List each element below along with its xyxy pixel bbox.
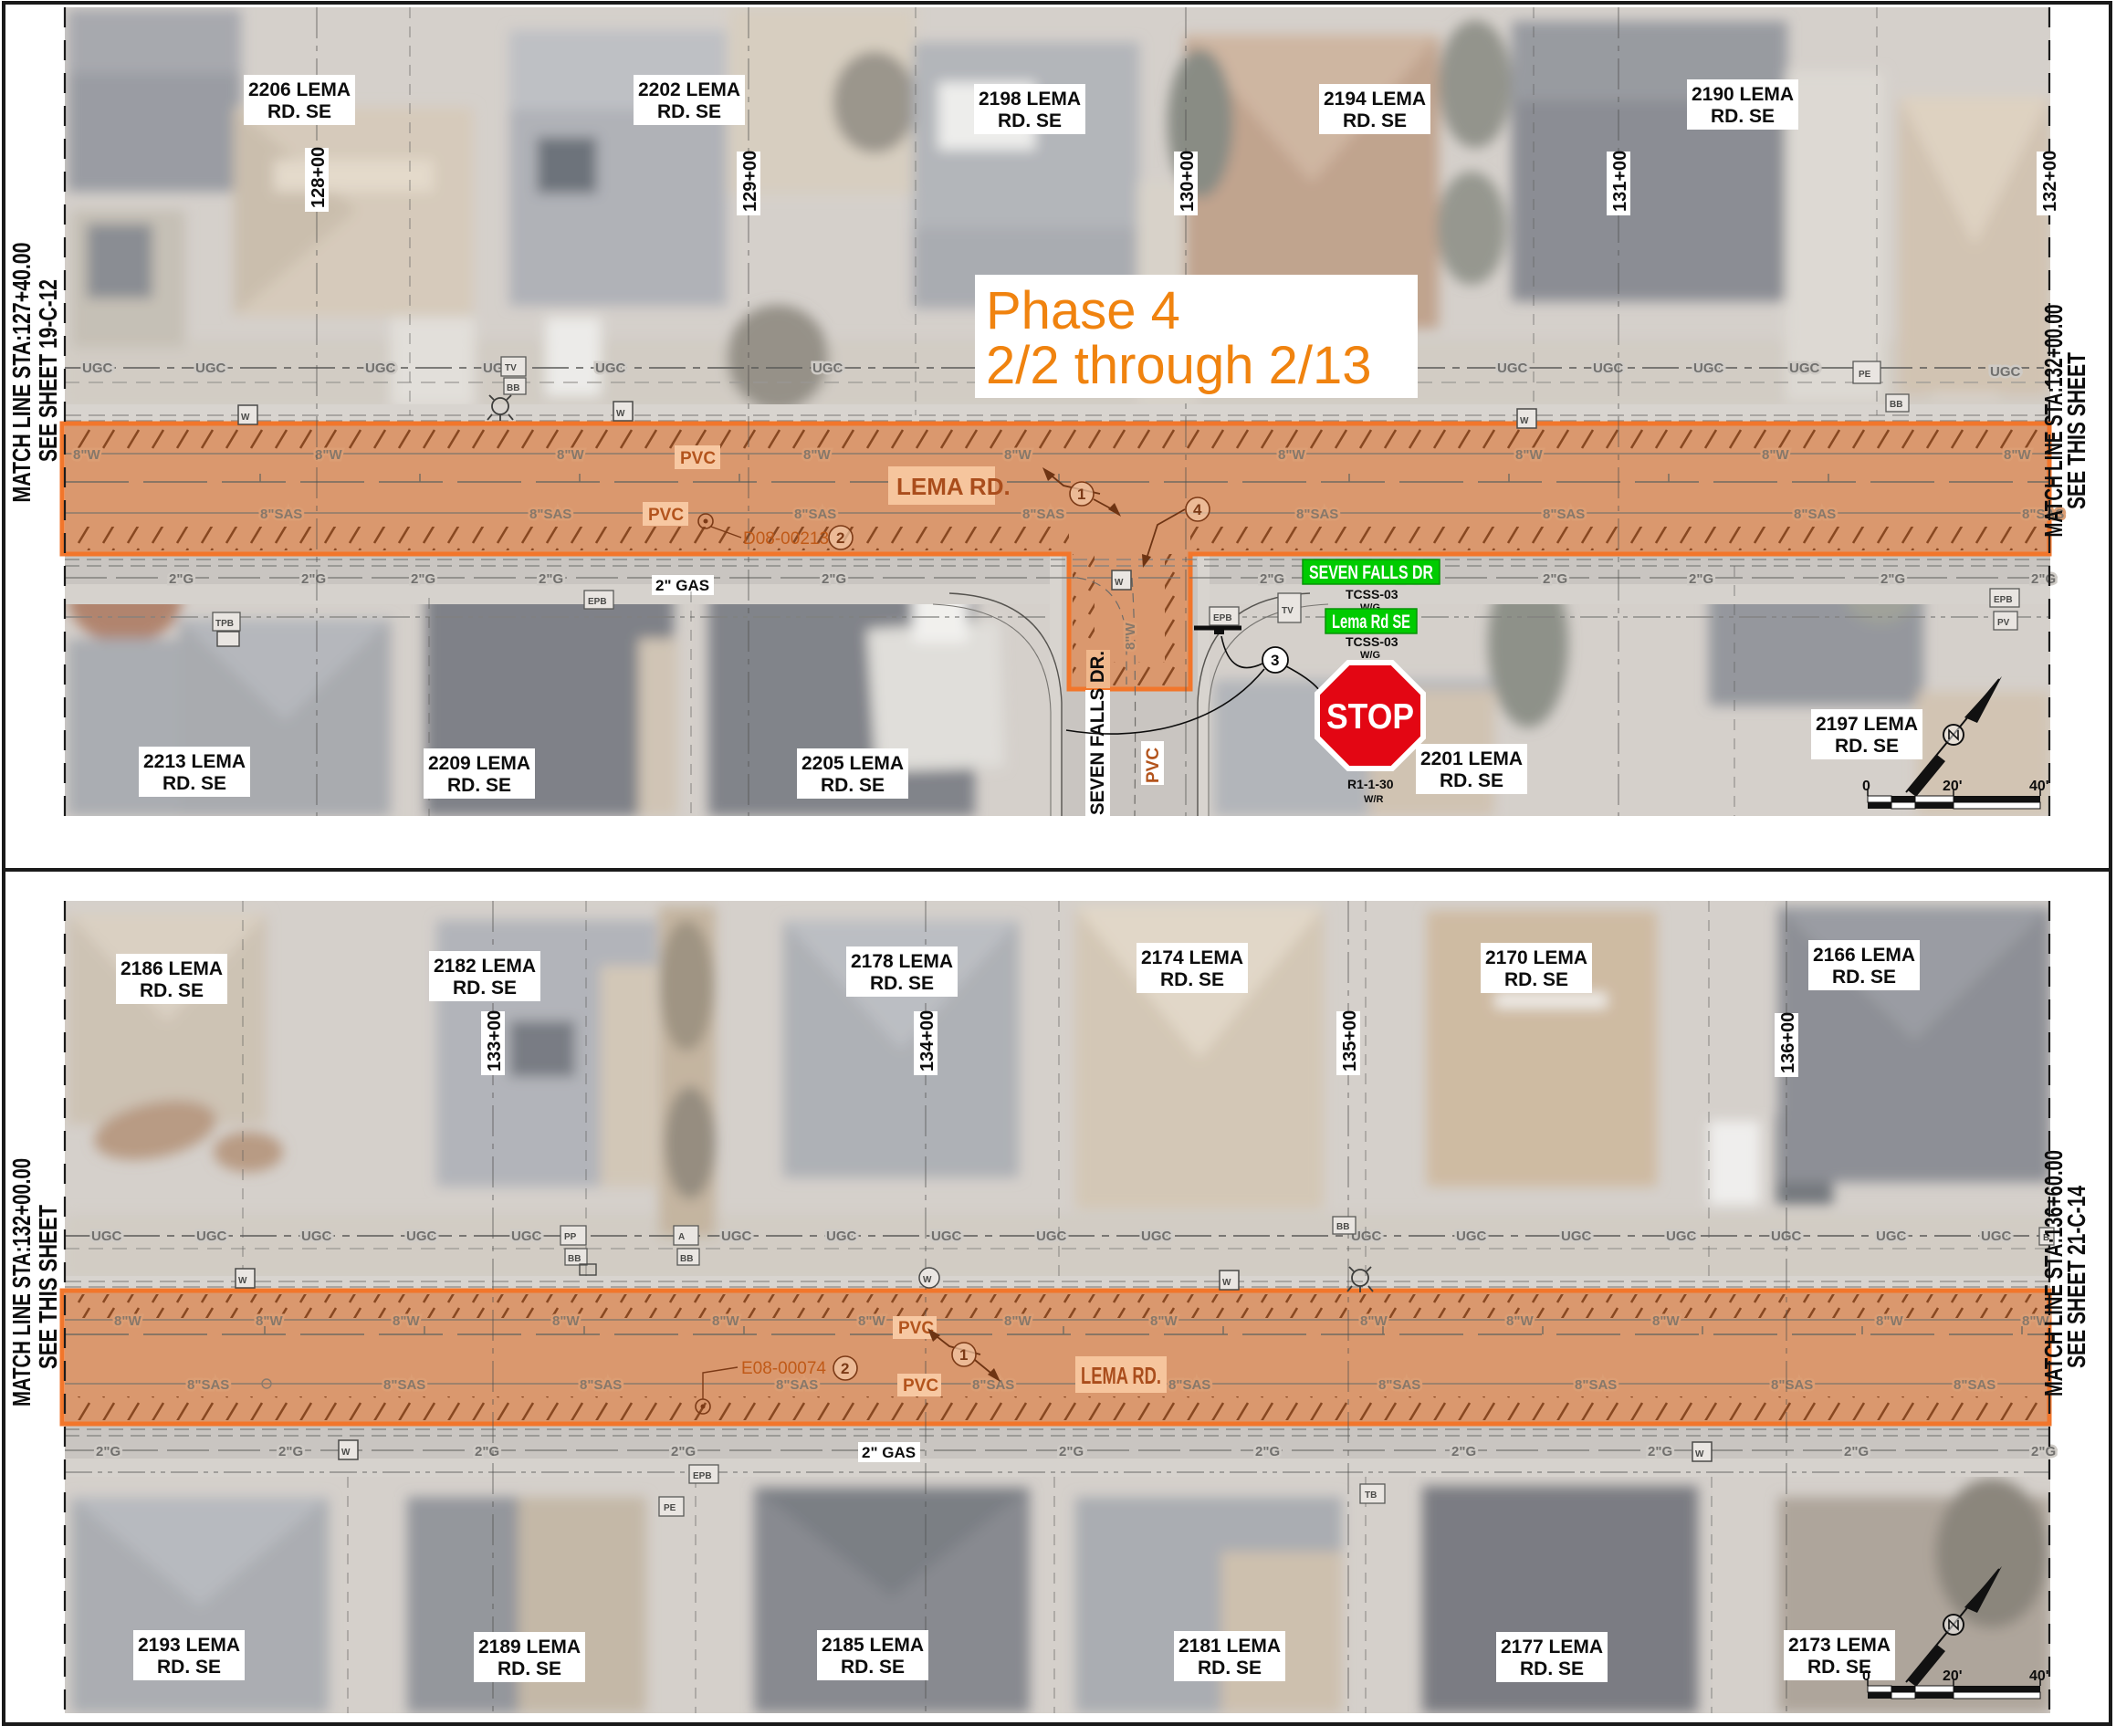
svg-text:8"SAS: 8"SAS — [1168, 1377, 1210, 1393]
svg-text:132+00: 132+00 — [2040, 151, 2060, 212]
svg-text:W: W — [616, 409, 625, 419]
svg-text:SEE THIS SHEET: SEE THIS SHEET — [34, 1205, 62, 1369]
svg-text:2" GAS: 2" GAS — [655, 577, 709, 594]
svg-text:PP: PP — [564, 1232, 577, 1242]
svg-text:MATCH LINE STA:132+00.00: MATCH LINE STA:132+00.00 — [7, 1158, 36, 1407]
svg-text:8"SAS: 8"SAS — [1794, 507, 1836, 522]
svg-text:2206 LEMA: 2206 LEMA — [248, 79, 351, 100]
svg-text:133+00: 133+00 — [485, 1010, 505, 1072]
svg-text:TV: TV — [505, 363, 517, 373]
svg-text:8"W: 8"W — [1876, 1313, 1903, 1329]
svg-text:40': 40' — [2029, 1668, 2049, 1684]
svg-text:BB: BB — [507, 383, 519, 393]
svg-text:TPB: TPB — [215, 619, 234, 629]
svg-text:8"W: 8"W — [73, 447, 100, 463]
svg-text:UGC: UGC — [1666, 1229, 1697, 1244]
svg-text:EPB: EPB — [588, 597, 607, 607]
svg-text:2193 LEMA: 2193 LEMA — [138, 1635, 240, 1656]
svg-text:TB: TB — [1365, 1490, 1377, 1501]
svg-text:Lema Rd SE: Lema Rd SE — [1332, 612, 1410, 633]
svg-text:SEE THIS SHEET: SEE THIS SHEET — [2062, 352, 2090, 509]
svg-text:RD. SE: RD. SE — [1504, 969, 1568, 990]
svg-text:8"W: 8"W — [803, 447, 831, 463]
svg-text:8"SAS: 8"SAS — [1954, 1377, 1996, 1393]
svg-text:0: 0 — [1862, 1668, 1870, 1684]
svg-text:8"SAS: 8"SAS — [1575, 1377, 1617, 1393]
svg-text:135+00: 135+00 — [1340, 1010, 1360, 1072]
svg-text:W: W — [238, 1276, 247, 1286]
svg-text:EPB: EPB — [1213, 613, 1232, 623]
svg-text:UGC: UGC — [1693, 361, 1724, 376]
svg-text:2173 LEMA: 2173 LEMA — [1788, 1635, 1891, 1656]
svg-text:UGC: UGC — [195, 361, 226, 376]
svg-text:2"G: 2"G — [2031, 1444, 2056, 1459]
svg-text:RD. SE: RD. SE — [998, 110, 1062, 131]
svg-text:PE: PE — [1859, 370, 1871, 380]
svg-text:TCSS-03: TCSS-03 — [1346, 587, 1398, 601]
svg-text:RD. SE: RD. SE — [453, 978, 517, 999]
svg-text:RD. SE: RD. SE — [267, 101, 331, 122]
svg-text:2"G: 2"G — [671, 1444, 696, 1459]
svg-text:2: 2 — [841, 1360, 849, 1377]
svg-text:131+00: 131+00 — [1610, 151, 1630, 212]
svg-text:2"G: 2"G — [2031, 571, 2056, 587]
svg-text:2181 LEMA: 2181 LEMA — [1178, 1636, 1281, 1657]
svg-text:UGC: UGC — [196, 1229, 227, 1244]
svg-text:8"W: 8"W — [557, 447, 584, 463]
svg-text:UGC: UGC — [511, 1229, 542, 1244]
svg-text:BB: BB — [568, 1254, 581, 1264]
svg-text:129+00: 129+00 — [740, 151, 760, 212]
svg-text:8"W: 8"W — [2004, 447, 2031, 463]
svg-text:BB: BB — [1336, 1222, 1349, 1232]
svg-text:PVC: PVC — [1144, 748, 1163, 783]
svg-text:2194 LEMA: 2194 LEMA — [1324, 89, 1426, 110]
svg-text:2"G: 2"G — [822, 571, 846, 587]
svg-text:W: W — [1520, 416, 1529, 426]
svg-text:128+00: 128+00 — [309, 147, 329, 208]
svg-text:RD. SE: RD. SE — [1520, 1658, 1584, 1679]
svg-text:SEE SHEET 21-C-14: SEE SHEET 21-C-14 — [2062, 1186, 2090, 1368]
svg-text:2: 2 — [836, 529, 844, 547]
svg-text:2185 LEMA: 2185 LEMA — [822, 1635, 924, 1656]
svg-text:RD. SE: RD. SE — [1440, 770, 1503, 791]
svg-text:SEE SHEET 19-C-12: SEE SHEET 19-C-12 — [34, 279, 62, 462]
svg-text:2"G: 2"G — [1648, 1444, 1672, 1459]
svg-text:8"SAS: 8"SAS — [580, 1377, 622, 1393]
svg-text:UGC: UGC — [931, 1229, 962, 1244]
svg-text:8"SAS: 8"SAS — [972, 1377, 1014, 1393]
svg-text:2/2 through 2/13: 2/2 through 2/13 — [986, 336, 1371, 395]
svg-text:8"W: 8"W — [315, 447, 342, 463]
svg-text:2174 LEMA: 2174 LEMA — [1141, 947, 1243, 968]
svg-text:D08-00213: D08-00213 — [743, 529, 829, 549]
svg-text:UGC: UGC — [1981, 1229, 2012, 1244]
svg-text:UGC: UGC — [1036, 1229, 1067, 1244]
svg-text:2190 LEMA: 2190 LEMA — [1692, 84, 1794, 105]
svg-text:UGC: UGC — [301, 1229, 332, 1244]
svg-text:RD. SE: RD. SE — [821, 775, 885, 796]
svg-text:W/R: W/R — [1364, 794, 1383, 805]
svg-text:W: W — [1695, 1449, 1704, 1459]
svg-text:RD. SE: RD. SE — [140, 980, 204, 1001]
svg-text:2"G: 2"G — [1880, 571, 1905, 587]
svg-text:STOP: STOP — [1326, 697, 1414, 737]
svg-text:2"G: 2"G — [301, 571, 326, 587]
svg-text:3: 3 — [1271, 652, 1279, 669]
svg-text:W/G: W/G — [1360, 650, 1380, 661]
svg-text:2170 LEMA: 2170 LEMA — [1485, 947, 1587, 968]
svg-text:130+00: 130+00 — [1178, 151, 1198, 212]
svg-text:RD. SE: RD. SE — [498, 1658, 561, 1679]
svg-text:BB: BB — [680, 1254, 693, 1264]
svg-text:A: A — [678, 1232, 685, 1242]
svg-text:0: 0 — [1862, 779, 1870, 794]
svg-text:UGC: UGC — [1497, 361, 1528, 376]
svg-text:RD. SE: RD. SE — [157, 1657, 221, 1678]
svg-text:2"G: 2"G — [1059, 1444, 1084, 1459]
svg-text:W: W — [241, 413, 250, 423]
svg-text:RD. SE: RD. SE — [870, 973, 934, 994]
svg-text:20': 20' — [1943, 779, 1963, 794]
svg-text:RD. SE: RD. SE — [1343, 110, 1407, 131]
svg-text:2177 LEMA: 2177 LEMA — [1501, 1637, 1603, 1658]
svg-text:2197 LEMA: 2197 LEMA — [1816, 714, 1918, 735]
svg-text:UGC: UGC — [721, 1229, 752, 1244]
svg-text:PVC: PVC — [648, 506, 684, 525]
svg-text:2166 LEMA: 2166 LEMA — [1813, 945, 1915, 966]
svg-text:8"SAS: 8"SAS — [1296, 507, 1338, 522]
svg-text:UGC: UGC — [82, 361, 113, 376]
svg-text:RD. SE: RD. SE — [657, 101, 721, 122]
svg-text:8"SAS: 8"SAS — [776, 1377, 818, 1393]
svg-text:8"W: 8"W — [1123, 622, 1138, 650]
svg-text:PV: PV — [1997, 618, 2010, 628]
svg-text:TV: TV — [1282, 606, 1294, 616]
svg-text:2"G: 2"G — [1543, 571, 1567, 587]
svg-text:2182 LEMA: 2182 LEMA — [434, 956, 536, 977]
svg-text:2198 LEMA: 2198 LEMA — [979, 89, 1081, 110]
svg-text:134+00: 134+00 — [917, 1010, 938, 1072]
svg-text:8"W: 8"W — [1278, 447, 1305, 463]
svg-text:RD. SE: RD. SE — [447, 775, 511, 796]
svg-text:RD. SE: RD. SE — [1835, 736, 1899, 757]
svg-text:8"W: 8"W — [712, 1313, 739, 1329]
svg-text:2"G: 2"G — [475, 1444, 499, 1459]
svg-text:UGC: UGC — [826, 1229, 857, 1244]
svg-text:2"G: 2"G — [1844, 1444, 1869, 1459]
svg-text:W: W — [923, 1275, 932, 1285]
svg-text:2209 LEMA: 2209 LEMA — [428, 753, 530, 774]
svg-text:8"SAS: 8"SAS — [1378, 1377, 1420, 1393]
svg-text:2"G: 2"G — [539, 571, 563, 587]
svg-text:2" GAS: 2" GAS — [862, 1444, 916, 1461]
svg-text:UGC: UGC — [406, 1229, 437, 1244]
svg-text:W: W — [1222, 1278, 1231, 1288]
svg-text:PVC: PVC — [903, 1376, 938, 1396]
svg-text:UGC: UGC — [1456, 1229, 1487, 1244]
svg-text:8"SAS: 8"SAS — [1771, 1377, 1813, 1393]
svg-text:Phase 4: Phase 4 — [986, 281, 1180, 340]
svg-text:2"G: 2"G — [96, 1444, 120, 1459]
svg-text:PVC: PVC — [898, 1319, 934, 1338]
svg-text:8"SAS: 8"SAS — [1543, 507, 1585, 522]
svg-text:4: 4 — [1193, 501, 1202, 518]
svg-text:2"G: 2"G — [1260, 571, 1284, 587]
svg-text:LEMA RD.: LEMA RD. — [896, 473, 1011, 500]
svg-text:UGC: UGC — [1561, 1229, 1592, 1244]
svg-text:2205 LEMA: 2205 LEMA — [801, 753, 904, 774]
svg-text:PVC: PVC — [680, 449, 716, 468]
svg-text:8"SAS: 8"SAS — [383, 1377, 425, 1393]
svg-text:8"W: 8"W — [1360, 1313, 1388, 1329]
svg-text:RD. SE: RD. SE — [1160, 969, 1224, 990]
svg-text:RD. SE: RD. SE — [1198, 1658, 1262, 1678]
svg-text:UGC: UGC — [595, 361, 626, 376]
svg-text:20': 20' — [1943, 1668, 1963, 1684]
svg-text:UGC: UGC — [1876, 1229, 1907, 1244]
svg-text:2"G: 2"G — [278, 1444, 303, 1459]
svg-text:TCSS-03: TCSS-03 — [1346, 634, 1398, 649]
svg-text:8"W: 8"W — [1652, 1313, 1680, 1329]
svg-text:2178 LEMA: 2178 LEMA — [851, 951, 953, 972]
svg-text:2"G: 2"G — [1451, 1444, 1476, 1459]
svg-text:8"W: 8"W — [1004, 447, 1032, 463]
svg-text:EPB: EPB — [1994, 595, 2013, 605]
svg-text:2189 LEMA: 2189 LEMA — [478, 1637, 581, 1658]
svg-text:1: 1 — [1077, 486, 1085, 503]
svg-text:8"W: 8"W — [1004, 1313, 1032, 1329]
svg-text:2"G: 2"G — [169, 571, 194, 587]
svg-text:SEVEN FALLS DR: SEVEN FALLS DR — [1309, 562, 1433, 583]
svg-text:EPB: EPB — [693, 1471, 712, 1481]
svg-text:8"W: 8"W — [114, 1313, 141, 1329]
svg-text:8"W: 8"W — [1150, 1313, 1178, 1329]
svg-text:R1-1-30: R1-1-30 — [1347, 777, 1394, 791]
svg-text:UGC: UGC — [812, 361, 843, 376]
svg-text:PE: PE — [664, 1503, 676, 1513]
svg-text:8"SAS: 8"SAS — [1022, 507, 1064, 522]
svg-text:136+00: 136+00 — [1778, 1012, 1798, 1073]
svg-text:8"W: 8"W — [1506, 1313, 1534, 1329]
svg-text:8"W: 8"W — [1515, 447, 1543, 463]
svg-text:2"G: 2"G — [411, 571, 435, 587]
svg-text:MATCH LINE STA:127+40.00: MATCH LINE STA:127+40.00 — [7, 243, 36, 503]
svg-text:2"G: 2"G — [1255, 1444, 1280, 1459]
svg-text:UGC: UGC — [1789, 361, 1820, 376]
svg-text:8"W: 8"W — [1762, 447, 1789, 463]
svg-text:UGC: UGC — [91, 1229, 122, 1244]
svg-text:BB: BB — [1890, 400, 1902, 410]
svg-text:W: W — [341, 1448, 351, 1458]
svg-text:W: W — [1115, 578, 1124, 588]
svg-text:2201 LEMA: 2201 LEMA — [1420, 748, 1523, 769]
svg-text:8"W: 8"W — [256, 1313, 283, 1329]
svg-text:8"W: 8"W — [393, 1313, 420, 1329]
svg-text:2"G: 2"G — [1689, 571, 1713, 587]
svg-text:2213 LEMA: 2213 LEMA — [143, 751, 246, 772]
svg-text:8"W: 8"W — [552, 1313, 580, 1329]
svg-text:8"W: 8"W — [858, 1313, 885, 1329]
svg-text:8"SAS: 8"SAS — [260, 507, 302, 522]
svg-text:E08-00074: E08-00074 — [741, 1359, 826, 1378]
svg-text:RD. SE: RD. SE — [162, 773, 226, 794]
svg-text:8"SAS: 8"SAS — [187, 1377, 229, 1393]
svg-text:RD. SE: RD. SE — [1711, 106, 1775, 127]
svg-text:UGC: UGC — [1990, 364, 2021, 380]
svg-text:LEMA RD.: LEMA RD. — [1081, 1362, 1161, 1389]
svg-text:UGC: UGC — [1141, 1229, 1172, 1244]
svg-text:RD. SE: RD. SE — [841, 1657, 905, 1678]
svg-text:40': 40' — [2029, 779, 2049, 794]
svg-text:2186 LEMA: 2186 LEMA — [120, 958, 223, 979]
svg-text:RD. SE: RD. SE — [1832, 967, 1896, 988]
svg-text:8"SAS: 8"SAS — [794, 507, 836, 522]
svg-text:UGC: UGC — [365, 361, 396, 376]
svg-text:1: 1 — [959, 1346, 968, 1364]
svg-text:8"SAS: 8"SAS — [529, 507, 571, 522]
svg-text:2202 LEMA: 2202 LEMA — [638, 79, 740, 100]
